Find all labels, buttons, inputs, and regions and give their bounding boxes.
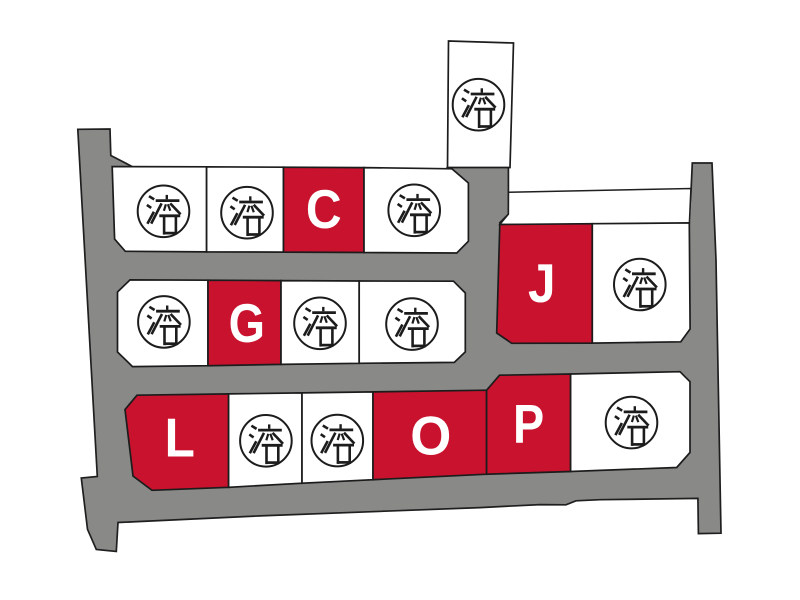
svg-text:C: C [306, 180, 342, 241]
svg-text:G: G [229, 293, 265, 354]
svg-text:P: P [513, 393, 544, 454]
svg-text:O: O [410, 405, 451, 466]
svg-text:J: J [528, 254, 556, 315]
svg-text:L: L [165, 408, 195, 469]
